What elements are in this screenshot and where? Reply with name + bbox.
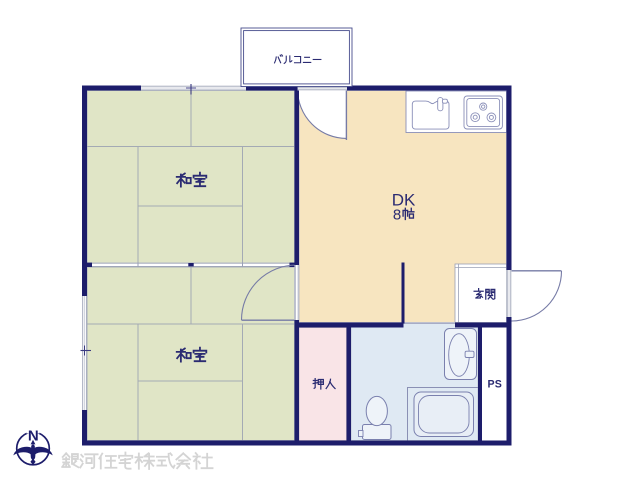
svg-text:8: 8	[393, 207, 401, 224]
svg-text:PS: PS	[488, 378, 503, 390]
